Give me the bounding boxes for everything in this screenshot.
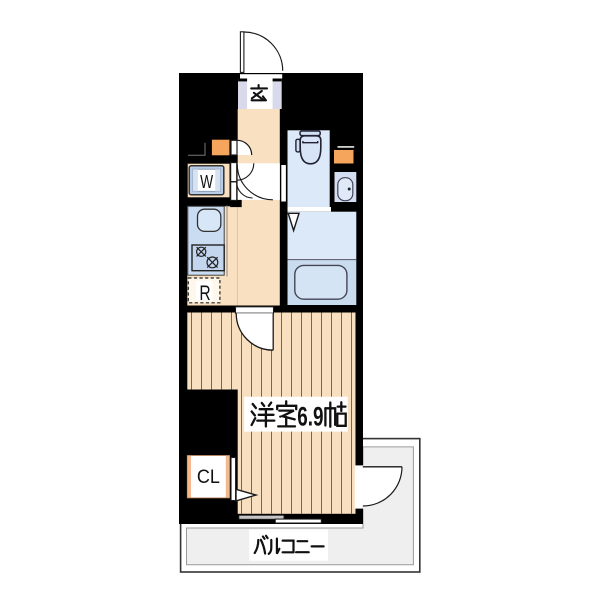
svg-text:CL: CL xyxy=(197,466,220,488)
svg-text:6.9: 6.9 xyxy=(297,401,323,431)
svg-text:W: W xyxy=(200,172,213,192)
svg-text:R: R xyxy=(199,281,210,305)
